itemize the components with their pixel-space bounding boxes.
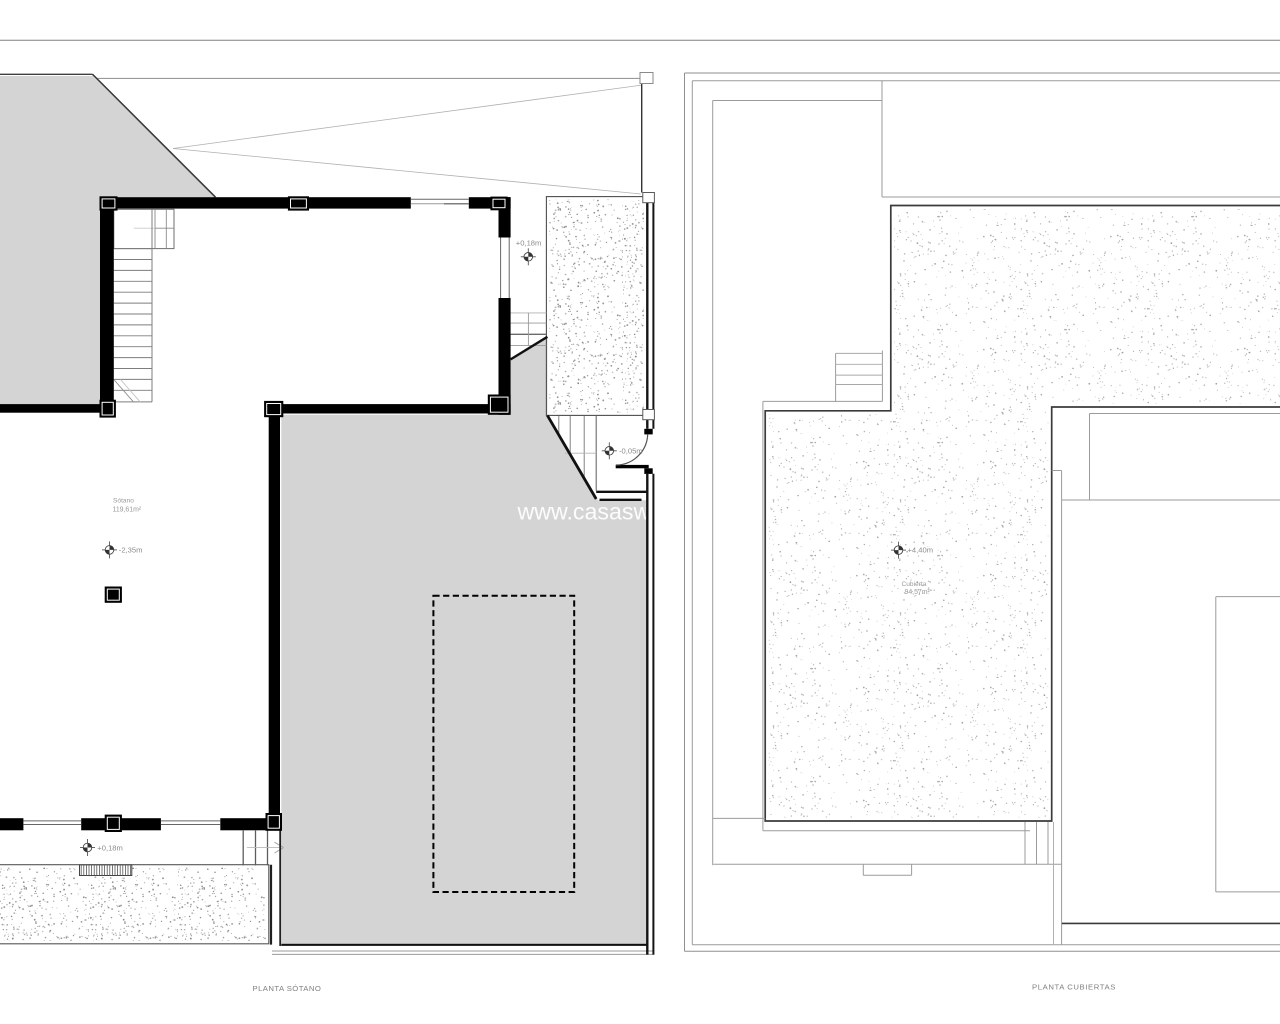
svg-text:Sótano: Sótano [113,498,134,505]
svg-text:119,61m²: 119,61m² [113,506,142,513]
svg-text:-2,35m: -2,35m [119,545,143,554]
svg-text:-0,05m: -0,05m [619,447,643,456]
svg-text:+0,18m: +0,18m [97,843,123,852]
svg-text:94,57m²: 94,57m² [905,589,931,596]
svg-text:+0,18m: +0,18m [516,238,542,247]
svg-text:PLANTA SÓTANO: PLANTA SÓTANO [253,984,322,993]
svg-text:Cubierta: Cubierta [902,581,927,588]
svg-text:+4,40m: +4,40m [908,546,934,555]
svg-text:PLANTA CUBIERTAS: PLANTA CUBIERTAS [1032,982,1116,991]
